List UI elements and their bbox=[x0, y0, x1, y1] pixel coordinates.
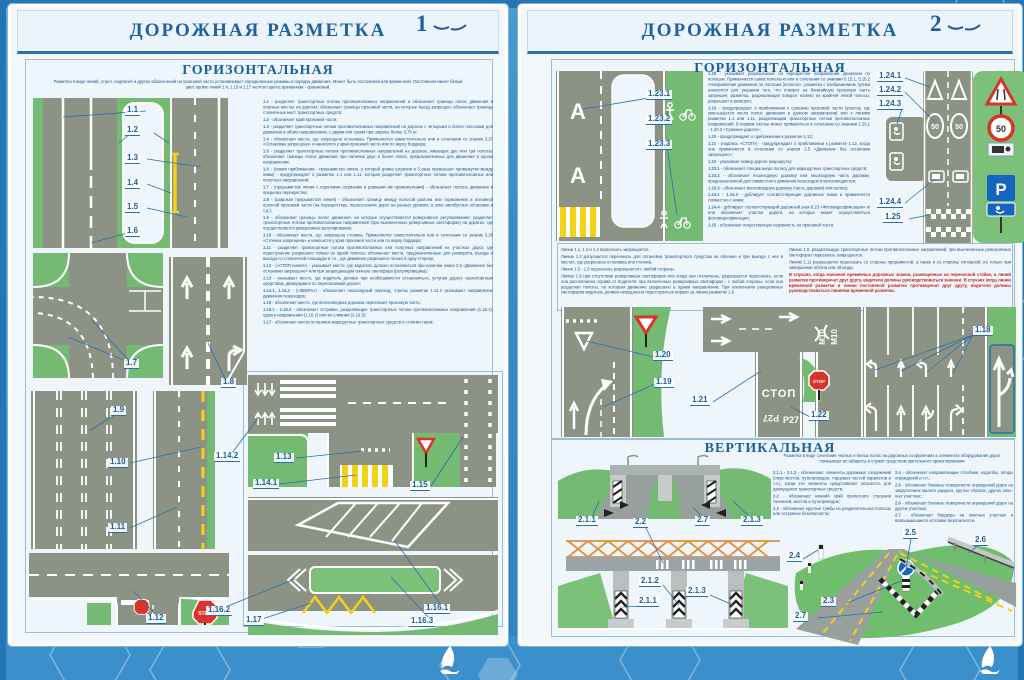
note: Линию 1.2 допускается пересекать для ост… bbox=[561, 254, 783, 265]
marking-description: 1.24.4 - дублирует соответствующий дорож… bbox=[708, 205, 870, 221]
road-signs-column: 50 P bbox=[973, 71, 1024, 243]
route-number-marking: М10 bbox=[830, 329, 839, 345]
marking-label: 1.23.1 bbox=[646, 90, 672, 100]
marking-label: 1.2 bbox=[125, 126, 140, 136]
marking-description: 2.7 - обозначает бордюры на опасных учас… bbox=[895, 513, 1013, 522]
poster-canvas: ДОРОЖНАЯ РАЗМЕТКА 1 ГОРИЗОНТАЛЬНАЯ Разме… bbox=[0, 0, 1024, 680]
diagram-1-19-1-20 bbox=[556, 307, 701, 437]
marking-description: 1.12 - («СТОП-линия») - указывает место,… bbox=[263, 263, 493, 274]
marking-description: 1.2 - обозначает край проезжей части; bbox=[263, 117, 493, 122]
marking-description: 1.19 - предупреждает о приближении к суж… bbox=[708, 105, 870, 132]
route-number-marking: Р27 bbox=[783, 415, 799, 425]
vertical-intro-box: Разметка в виде сочетания черных и белых… bbox=[773, 453, 1011, 469]
marking-description: 1.23.3 - обозначает велосипедную дорожку… bbox=[708, 185, 870, 190]
page-title: ДОРОЖНАЯ РАЗМЕТКА bbox=[642, 20, 899, 42]
marking-label: 1.6 bbox=[125, 227, 140, 237]
diagram-crossings-1-13-1-14-1-15 bbox=[248, 375, 498, 487]
marking-label: 1.20 bbox=[653, 351, 673, 361]
marking-description: 1.7 - (прерывистая линия с короткими штр… bbox=[263, 184, 493, 195]
note: Линию 1.9, разделяющую транспортные пото… bbox=[789, 247, 1011, 258]
marking-label: 1.14.2 bbox=[214, 452, 240, 462]
marking-label: 2.2 bbox=[633, 518, 648, 528]
marking-label: 1.21 bbox=[690, 396, 710, 406]
marking-label: 1.24.1 bbox=[877, 72, 903, 82]
diagram-bus-lane-1-23: А А bbox=[556, 71, 703, 241]
marking-description: 1.16.1 - 1.16.3 - обозначает островки, р… bbox=[263, 307, 493, 318]
note: Линии 1.1, 1.2 и 1.3 пересекать запрещае… bbox=[561, 247, 783, 252]
panel-1: ДОРОЖНАЯ РАЗМЕТКА 1 ГОРИЗОНТАЛЬНАЯ Разме… bbox=[8, 4, 508, 646]
marking-label: 2.7 bbox=[695, 516, 710, 526]
marking-label: 1.23.3 bbox=[646, 140, 672, 150]
page-title: ДОРОЖНАЯ РАЗМЕТКА bbox=[130, 20, 387, 42]
descriptions-2-1-to-2-3: 2.1.1 - 2.1.3 - обозначают элементы доро… bbox=[773, 470, 891, 522]
marking-label: 1.22 bbox=[809, 411, 829, 421]
note: Линию 1.9 при отсутствии реверсивных све… bbox=[561, 273, 783, 295]
marking-label: 1.24.2 bbox=[877, 86, 903, 96]
descriptions-2-4-to-2-7: 2.4 - обозначает направляющие столбики, … bbox=[895, 470, 1013, 522]
marking-description: 1.3 - разделяет транспортные потоки прот… bbox=[263, 124, 493, 135]
marking-description: 1.23.2 - обозначает пешеходную дорожку и… bbox=[708, 173, 870, 184]
marking-label: 1.1 bbox=[125, 106, 140, 116]
marking-label: 1.9 bbox=[111, 406, 126, 416]
marking-description: 1.17 - обозначает места остановок маршру… bbox=[263, 320, 493, 325]
marking-label: 1.7 bbox=[124, 359, 139, 369]
marking-label: 1.4 bbox=[125, 179, 140, 189]
panel-2: ДОРОЖНАЯ РАЗМЕТКА 2 ГОРИЗОНТАЛЬНАЯ ВЕРТИ… bbox=[518, 4, 1022, 646]
marking-description: 2.1.1 - 2.1.3 - обозначают элементы доро… bbox=[773, 470, 891, 492]
marking-description: 1.8 - (широкая прерывистая линия) - обоз… bbox=[263, 197, 493, 213]
bridge-railing bbox=[566, 541, 780, 557]
marking-description: 1.22 - указывает номер дороги (маршрута)… bbox=[708, 159, 870, 164]
diagram-lane-arrows-1-18 bbox=[863, 307, 1016, 437]
marking-description: 1.21 - (надпись «СТОП») - предупреждает … bbox=[708, 141, 870, 157]
marking-label: 2.5 bbox=[903, 529, 918, 539]
bus-lane-letter: А bbox=[570, 163, 586, 188]
page-number: 1 bbox=[416, 11, 428, 36]
marking-label: 2.4 bbox=[787, 552, 802, 562]
diagram-intersection-1-7 bbox=[33, 253, 163, 378]
marking-description: 2.2 - обозначает нижний край пролетного … bbox=[773, 493, 891, 504]
marking-label: 1.11 bbox=[108, 523, 127, 533]
marking-label: 1.17 bbox=[244, 616, 264, 626]
marking-description: 1.20 - предупреждает о приближении к раз… bbox=[708, 134, 870, 139]
diagram-underpass-vertical-markings bbox=[558, 453, 771, 519]
diagram-road-1-10-1-11 bbox=[153, 391, 215, 549]
marking-description: 1.5 - разделяет транспортные потоки прот… bbox=[263, 149, 493, 165]
section-title-horizontal: ГОРИЗОНТАЛЬНАЯ bbox=[11, 63, 505, 79]
marking-description: 1.18 - указывает разрешенные на перекрес… bbox=[708, 71, 870, 104]
marking-label: 2.1.1 bbox=[576, 516, 598, 526]
marking-label: 2.6 bbox=[973, 536, 988, 546]
marking-description: 2.4 - обозначает направляющие столбики, … bbox=[895, 470, 1013, 481]
marking-label: 2.3 bbox=[821, 597, 836, 607]
page-number-badge: 2 bbox=[930, 12, 982, 35]
diagram-islands-1-16-1-17 bbox=[248, 489, 498, 635]
marking-label: 1.10 bbox=[108, 458, 128, 468]
marking-label: 1.24.4 bbox=[877, 198, 903, 208]
speed-50-marking: 50 bbox=[955, 124, 963, 131]
route-number-marking: М10 bbox=[818, 329, 827, 345]
bus-lane-letter: А bbox=[570, 99, 586, 124]
marking-description: 1.4 - обозначает места, где запрещена ос… bbox=[263, 136, 493, 147]
marking-label: 1.18 bbox=[973, 326, 993, 336]
marking-label: 1.24.3 bbox=[877, 100, 903, 110]
notes-left: Линии 1.1, 1.2 и 1.3 пересекать запрещае… bbox=[561, 247, 783, 307]
panel-1-header: ДОРОЖНАЯ РАЗМЕТКА 1 bbox=[17, 10, 499, 54]
marking-label: 1.25 bbox=[883, 213, 903, 223]
note: Линии 1.5 - 1.8 пересекать разрешается с… bbox=[561, 266, 783, 271]
page-number-badge: 1 bbox=[416, 12, 468, 35]
marking-description: 1.24.1 - 1.24.3 - дублирует соответствую… bbox=[708, 192, 870, 203]
marking-description: 1.6 - (линия приближения - прерывистая л… bbox=[263, 167, 493, 183]
vertical-intro: Разметка в виде сочетания черных и белых… bbox=[773, 453, 1011, 464]
note: Линию 1.11 разрешается пересекать со сто… bbox=[789, 259, 1011, 270]
marking-label: 1.23.2 bbox=[646, 115, 672, 125]
marking-description: 2.6 - обозначает боковые поверхности огр… bbox=[895, 500, 1013, 511]
marking-label: 1.16.1 bbox=[424, 604, 450, 614]
badge-swash-icon bbox=[432, 22, 468, 31]
marking-description: 1.9 - обозначает границы полос движения,… bbox=[263, 215, 493, 231]
marking-label: 2.7 bbox=[793, 612, 808, 622]
svg-text:STOP: STOP bbox=[813, 379, 825, 384]
marking-label: 1.8 bbox=[221, 378, 236, 388]
marking-label: 1.3 bbox=[125, 154, 140, 164]
marking-label: 1.12 bbox=[146, 614, 166, 624]
horizontal-intro: Разметка в виде линий, стрел, надписей и… bbox=[51, 79, 465, 90]
diagram-bridge-vertical-markings bbox=[558, 531, 788, 639]
diagram-stop-line-1-12: STOP bbox=[29, 553, 229, 625]
stop-road-marking: СТОП bbox=[762, 388, 797, 400]
camera-sign bbox=[988, 143, 1014, 156]
marking-description: 1.11 - разделяет транспортные потоки про… bbox=[263, 245, 493, 261]
marking-description: 1.25 - обозначает искусственную неровнос… bbox=[708, 223, 870, 228]
speed-limit-50-sign: 50 bbox=[989, 116, 1013, 140]
lane-directions-sign bbox=[990, 345, 1014, 433]
page-number: 2 bbox=[930, 11, 942, 36]
notes-right: Линию 1.9, разделяющую транспортные пото… bbox=[789, 247, 1011, 307]
marking-label: 1.15 bbox=[410, 481, 430, 491]
marking-label: 1.16.3 bbox=[409, 617, 435, 627]
descriptions-1-18-to-1-25: 1.18 - указывает разрешенные на перекрес… bbox=[708, 71, 870, 245]
marking-description: 1.23.1 - обозначает специальную полосу д… bbox=[708, 166, 870, 171]
marking-label: 1.19 bbox=[654, 378, 674, 388]
marking-description: 2.5 - обозначает боковые поверхности огр… bbox=[895, 482, 1013, 498]
marking-description: 2.3 - обозначает круглые тумбы на раздел… bbox=[773, 506, 891, 517]
diagram-1-21-1-22: СТОП Р27 Р27 М10 М10 STOP bbox=[703, 307, 861, 437]
descriptions-1-1-to-1-17: 1.1 - разделяет транспортные потоки прот… bbox=[263, 99, 493, 353]
marking-label: 1.13 bbox=[274, 453, 294, 463]
svg-text:50: 50 bbox=[996, 124, 1006, 134]
diagram-road-1-8 bbox=[167, 257, 249, 385]
marking-label: 2.1.3 bbox=[686, 587, 708, 597]
striped-pier-marking bbox=[615, 591, 742, 618]
marking-label: 2.1.3 bbox=[741, 516, 763, 526]
marking-label: 1.14.1 bbox=[253, 479, 279, 489]
marking-description: 1.1 - разделяет транспортные потоки прот… bbox=[263, 99, 493, 115]
badge-swash-icon bbox=[946, 22, 982, 31]
panel-2-header: ДОРОЖНАЯ РАЗМЕТКА 2 bbox=[527, 10, 1013, 54]
marking-description: 1.13 - указывает место, где водитель дол… bbox=[263, 275, 493, 286]
marking-description: 1.15 - обозначает место, где велосипедна… bbox=[263, 300, 493, 305]
marking-label: 2.1.1 bbox=[637, 597, 659, 607]
sail-logo bbox=[436, 644, 464, 680]
svg-text:P: P bbox=[995, 180, 1006, 199]
horizontal-intro-box: Разметка в виде линий, стрел, надписей и… bbox=[51, 79, 465, 97]
marking-description: 1.10 - обозначает места, где запрещена с… bbox=[263, 233, 493, 244]
sail-logo bbox=[976, 644, 1004, 680]
speed-50-marking: 50 bbox=[931, 124, 939, 131]
route-number-marking: Р27 bbox=[763, 413, 779, 423]
marking-label: 2.1.2 bbox=[639, 577, 661, 587]
marking-description: 1.14.1, 1.14.2 - («ЗЕБРА») - обозначает … bbox=[263, 288, 493, 299]
note-warning: В случаях, когда значения временных доро… bbox=[789, 272, 1011, 294]
marking-label: 1.16.2 bbox=[206, 606, 232, 616]
marking-label: 1.5 bbox=[125, 203, 140, 213]
